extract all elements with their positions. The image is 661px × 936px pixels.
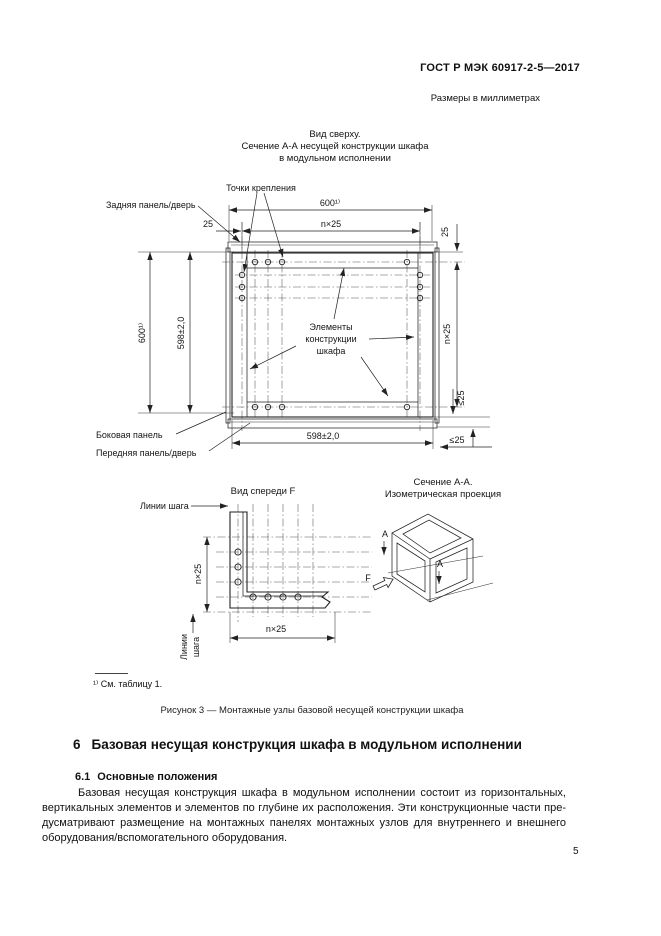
front-dim-pitch-h-text: n×25 <box>266 624 286 634</box>
iso-view-title1: Сечение А-А. <box>413 477 472 488</box>
dimension-pitch-horizontal: n×25 <box>242 219 420 251</box>
dim-offset-left-text: 25 <box>203 219 213 229</box>
dim-pitch-v-text: n×25 <box>442 324 452 344</box>
dimension-width-overall: 600¹⁾ <box>229 198 432 241</box>
subsection-title: Основные положения <box>97 771 217 783</box>
front-view-title: Вид спереди F <box>231 486 296 497</box>
view-direction-label-f: F <box>365 573 371 583</box>
dimension-max-right: ≤25 <box>453 389 466 414</box>
section-label-a1: А <box>382 529 388 539</box>
leader-attachment-points-1 <box>244 193 257 272</box>
label-pitch-lines-v2: шага <box>191 637 201 657</box>
cabinet-frame-outline <box>232 253 433 417</box>
label-elements-line2: конструкции <box>305 334 356 344</box>
dim-offset-right-text: 25 <box>440 227 450 237</box>
document-page: ГОСТ Р МЭК 60917-2-5—2017 Размеры в милл… <box>0 0 661 936</box>
label-front-panel: Передняя панель/дверь <box>96 448 197 458</box>
body-paragraph: Базовая несущая конструкция шкафа в моду… <box>42 786 566 846</box>
dim-height-overall-text: 600¹⁾ <box>137 323 147 343</box>
side-panel-right-outline <box>435 248 439 423</box>
section-heading: 6Базовая несущая конструкция шкафа в мод… <box>73 737 522 752</box>
view-direction-arrow-f: F <box>365 573 395 593</box>
dimension-height-inner: 598±2,0 <box>176 252 190 413</box>
standard-number-header: ГОСТ Р МЭК 60917-2-5—2017 <box>420 62 580 74</box>
front-view-dim-vertical: n×25 <box>193 537 207 612</box>
figure-title-line3: в модульном исполнении <box>175 153 495 165</box>
label-pitch-lines-v1: Линии <box>179 634 189 660</box>
rear-panel-outline <box>228 242 437 252</box>
label-pitch-lines-bottom: Линии шага <box>179 614 201 660</box>
subsection-heading: 6.1Основные положения <box>75 771 217 783</box>
block-arrow-icon <box>372 574 396 593</box>
label-side-panel: Боковая панель <box>96 430 163 440</box>
label-pitch-lines-top: Линии шага <box>140 501 189 511</box>
footnote-text: ¹⁾ См. таблицу 1. <box>93 679 162 690</box>
figure-title-line2: Сечение А-А несущей конструкции шкафа <box>175 141 495 153</box>
figure-caption: Рисунок 3 — Монтажные узлы базовой несущ… <box>42 705 582 716</box>
dim-width-overall-text: 600¹⁾ <box>320 198 340 208</box>
leader-attachment-points-2 <box>264 193 283 257</box>
corner-bracket-outline <box>230 512 330 608</box>
page-number: 5 <box>573 846 579 857</box>
front-view-pitch-grid <box>203 504 372 622</box>
leader-side-panel <box>176 412 226 434</box>
frame-cube <box>388 514 493 602</box>
label-elements-line3: шкафа <box>317 346 346 356</box>
leader-rear-panel <box>198 206 240 242</box>
label-cabinet-elements: Элементы конструкции шкафа <box>250 268 414 396</box>
front-dim-pitch-v-text: n×25 <box>193 564 203 584</box>
side-panel-left-outline <box>226 248 230 423</box>
dimension-offset-right: 25 <box>435 224 463 252</box>
front-view-dim-horizontal: n×25 <box>230 612 335 643</box>
dim-width-inner-text: 598±2,0 <box>307 431 339 441</box>
isometric-view-drawing: Сечение А-А. Изометрическая проекция А А <box>365 477 501 602</box>
label-rear-panel: Задняя панель/дверь <box>106 200 196 210</box>
units-note: Размеры в миллиметрах <box>431 93 540 104</box>
dimension-pitch-vertical: n×25 <box>442 262 457 407</box>
dimension-width-inner: 598±2,0 <box>232 420 433 449</box>
figure-title-block: Вид сверху. Сечение А-А несущей конструк… <box>175 129 495 165</box>
subsection-number: 6.1 <box>75 771 90 783</box>
attachment-holes <box>239 259 422 409</box>
top-view-centerlines <box>222 222 465 431</box>
front-panel-outline <box>228 419 437 428</box>
dim-max-right-text: ≤25 <box>456 391 466 406</box>
footnote-divider <box>95 673 128 674</box>
label-elements-line1: Элементы <box>309 322 352 332</box>
section-label-a2: А <box>437 559 443 569</box>
dimension-height-overall: 600¹⁾ <box>137 252 234 413</box>
dimension-offset-left: 25 <box>203 219 241 231</box>
section-arrow-a2: А <box>437 559 443 584</box>
dimension-max-bottom: ≤25 <box>433 417 492 447</box>
dim-height-inner-text: 598±2,0 <box>176 317 186 349</box>
iso-view-title2: Изометрическая проекция <box>385 489 501 500</box>
front-view-drawing: Вид спереди F <box>140 486 372 660</box>
dim-max-bottom-text: ≤25 <box>450 435 465 445</box>
section-title: Базовая несущая конструкция шкафа в моду… <box>92 737 522 752</box>
figure-title-line1: Вид сверху. <box>175 129 495 141</box>
front-view-holes <box>235 549 301 600</box>
section-number: 6 <box>73 737 81 752</box>
section-arrow-a1: А <box>382 529 388 555</box>
dim-pitch-h-text: n×25 <box>321 219 341 229</box>
leader-front-panel <box>209 423 250 451</box>
top-view-drawing: 600¹⁾ n×25 25 600¹⁾ 598±2,0 <box>96 183 492 458</box>
label-attachment-points: Точки крепления <box>226 183 296 193</box>
